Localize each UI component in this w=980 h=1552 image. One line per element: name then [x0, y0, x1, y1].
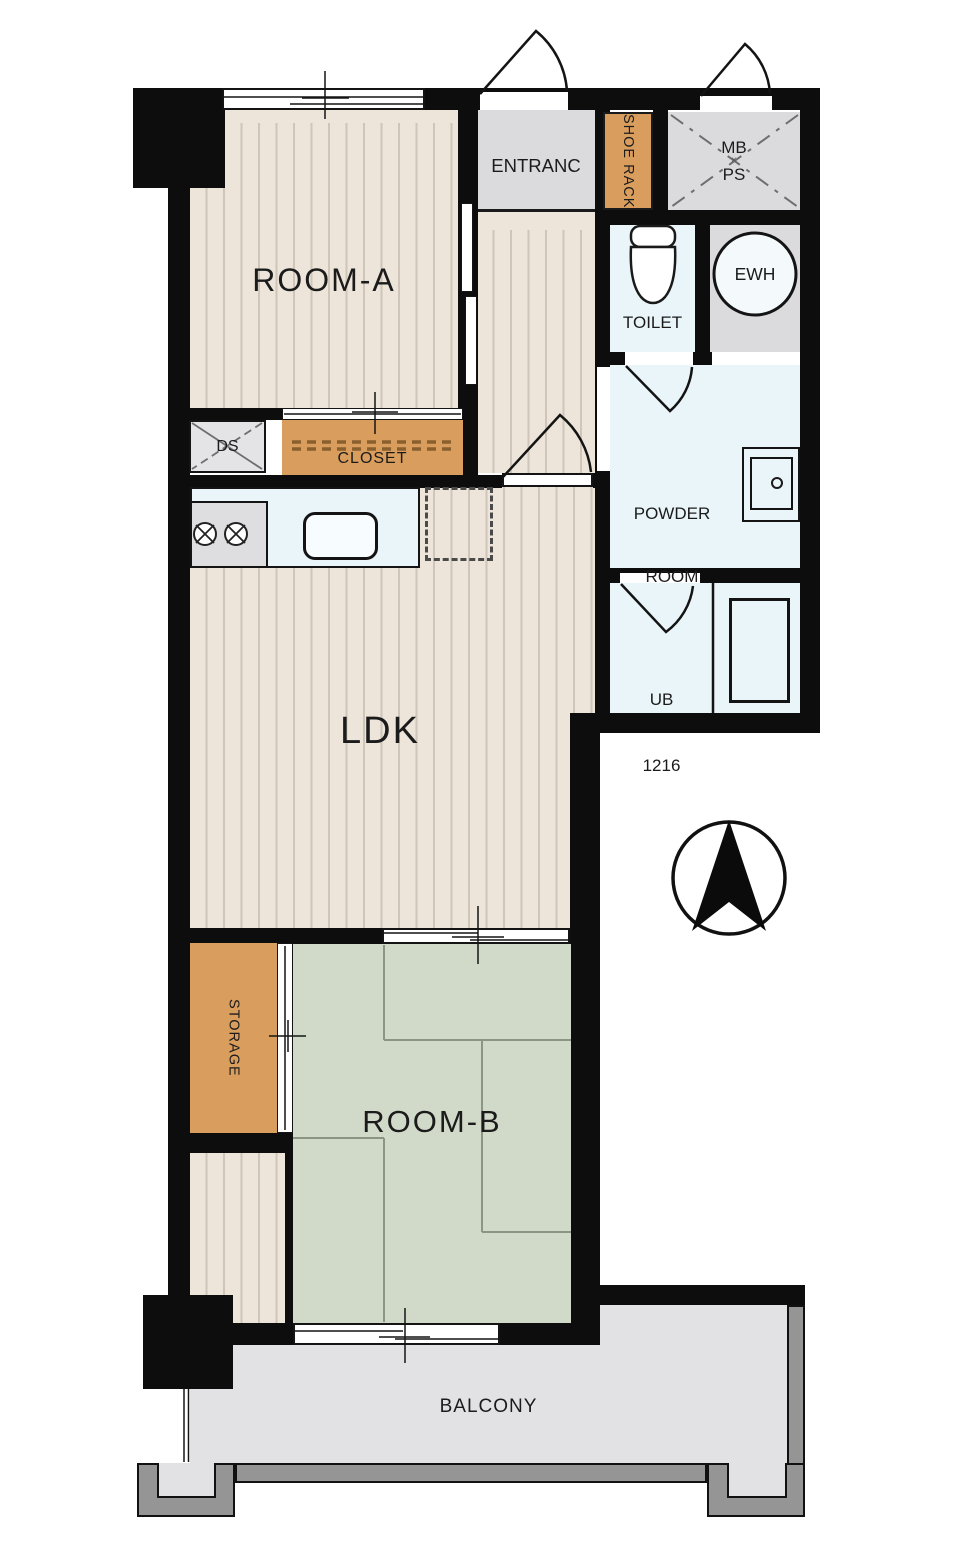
- powder-room-label: POWDER ROOM: [606, 460, 738, 630]
- storage-label: STORAGE: [190, 943, 277, 1133]
- kitchen-sink: [303, 512, 378, 560]
- ub-label-line2: 1216: [610, 755, 713, 777]
- room-a-sliding-door-panel-1: [461, 203, 473, 292]
- room-b-label: ROOM-B: [293, 1104, 571, 1140]
- ldk-roomb-window: [382, 928, 570, 944]
- entrance-door-leaf: [480, 92, 568, 110]
- ub-label-line1: UB: [610, 689, 713, 711]
- wall-ldk-right: [570, 715, 600, 944]
- room-a-floor-edge: [190, 110, 458, 123]
- stove: [190, 501, 268, 568]
- refrigerator-space: [425, 487, 493, 561]
- wall-shoerack-mbps: [653, 110, 668, 210]
- ldk-door-leaf: [502, 473, 593, 487]
- balcony-label: BALCONY: [190, 1396, 787, 1418]
- hallway-floor-edge: [477, 212, 595, 230]
- room-a-window: [222, 88, 425, 110]
- ewh-label: EWH: [714, 264, 796, 285]
- mb-ps-label: MB × PS: [668, 112, 800, 210]
- shoe-rack-label: SHOE RACK: [603, 112, 653, 210]
- balcony-railing-left-notch: [157, 1463, 216, 1498]
- ewh-floor: [710, 225, 800, 352]
- room-a-label: ROOM-A: [190, 262, 458, 299]
- toilet-door-opening: [625, 352, 693, 365]
- floor-plan: ROOM-A LDK ROOM-B ENTRANC SHOE RACK MB ×…: [0, 0, 980, 1552]
- room-a-sliding-door-panel-2: [465, 296, 477, 385]
- ps-label: PS: [723, 166, 746, 183]
- toilet-label: TOILET: [610, 313, 695, 333]
- balcony-railing-bottom: [235, 1463, 707, 1483]
- wall-right: [800, 88, 820, 733]
- entrance-label: ENTRANC: [477, 155, 595, 177]
- mb-ps-door-leaf: [700, 96, 772, 110]
- wall-storage-bottom: [168, 1133, 293, 1153]
- powder-room-opening: [597, 367, 610, 471]
- powder-sink-inner: [750, 457, 793, 510]
- wall-under-mbps: [595, 210, 820, 225]
- room-a-floor: [190, 110, 458, 408]
- ldk-label: LDK: [190, 710, 570, 753]
- powder-label-line1: POWDER: [606, 503, 738, 524]
- wall-alcove-tatami: [285, 1153, 293, 1323]
- wall-left: [168, 88, 190, 1345]
- wall-toilet-ewh: [695, 225, 710, 352]
- room-b-window: [293, 1323, 500, 1345]
- north-arrow-icon: [673, 820, 785, 934]
- powder-label-line2: ROOM: [606, 566, 738, 587]
- entrance-door-swing: [480, 31, 567, 94]
- bathtub: [729, 598, 790, 703]
- balcony-partition: [184, 1389, 189, 1462]
- mb-label: MB: [721, 139, 747, 156]
- ub-label: UB 1216: [610, 645, 713, 822]
- storage-sliding-door: [277, 943, 293, 1133]
- wall-balcony-top-right: [575, 1285, 805, 1305]
- balcony-railing-right: [787, 1305, 805, 1465]
- balcony-floor-right: [600, 1305, 787, 1463]
- wall-column-bottom-left: [143, 1295, 233, 1389]
- hallway-floor: [477, 230, 595, 473]
- balcony-railing-right-notch: [727, 1463, 787, 1498]
- ds-label: DS: [189, 420, 266, 473]
- closet-sliding-door: [282, 408, 463, 420]
- closet-label: CLOSET: [282, 450, 463, 468]
- ewh-opening: [712, 352, 800, 365]
